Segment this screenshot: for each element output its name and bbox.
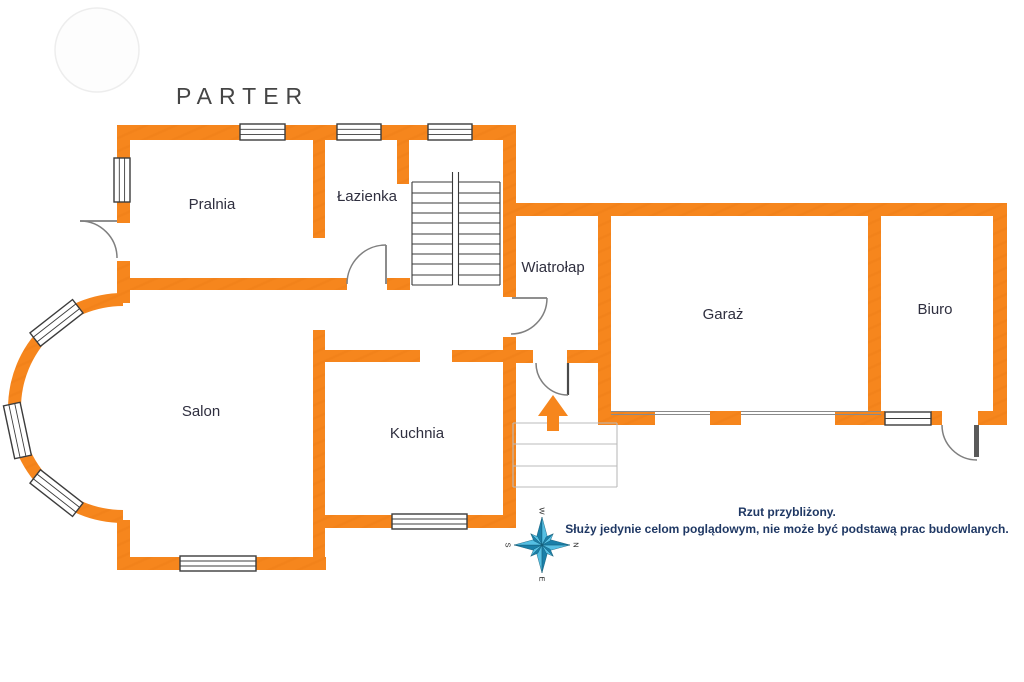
window-pralnia-top — [240, 124, 285, 140]
window-bay-3 — [30, 470, 83, 517]
door-biuro-exterior — [942, 425, 979, 460]
door-pralnia-exterior — [80, 221, 117, 258]
windows — [3, 124, 931, 571]
compass-w: W — [538, 507, 547, 515]
room-label-lazienka: Łazienka — [337, 188, 398, 205]
disclaimer-line2: Służy jedynie celom poglądowym, nie może… — [565, 522, 1008, 536]
room-label-pralnia: Pralnia — [189, 196, 236, 213]
entrance-arrow-icon — [538, 395, 568, 431]
window-lazienka-top — [337, 124, 381, 140]
walls — [8, 125, 1007, 570]
compass-n: N — [572, 542, 581, 547]
floor-plan-svg: N E S W PARTER Pralnia Łazienka Wiatroła… — [0, 0, 1024, 682]
staircase — [412, 172, 500, 285]
disclaimer-line1: Rzut przybliżony. — [738, 505, 836, 519]
floor-title: PARTER — [176, 83, 309, 109]
window-stairs-top — [428, 124, 472, 140]
room-label-wiatrolap: Wiatrołap — [521, 259, 584, 276]
door-entrance — [536, 363, 568, 395]
window-bay-2 — [3, 402, 31, 458]
entrance-steps — [513, 423, 617, 487]
window-biuro-bottom — [885, 412, 931, 425]
room-label-kuchnia: Kuchnia — [390, 425, 445, 442]
door-wiatrolap-hall — [511, 298, 547, 334]
window-bay-1 — [30, 300, 83, 347]
labels: PARTER Pralnia Łazienka Wiatrołap Garaż … — [176, 83, 1009, 536]
door-lazienka — [347, 245, 386, 284]
compass-s: S — [504, 542, 513, 547]
window-pralnia-left — [114, 158, 130, 202]
room-label-salon: Salon — [182, 403, 220, 420]
room-label-garaz: Garaż — [703, 306, 744, 323]
compass-e: E — [538, 576, 547, 581]
room-label-biuro: Biuro — [917, 301, 952, 318]
window-kuchnia-bottom — [392, 514, 467, 529]
window-salon-bottom — [180, 556, 256, 571]
watermark-circle — [55, 8, 139, 92]
